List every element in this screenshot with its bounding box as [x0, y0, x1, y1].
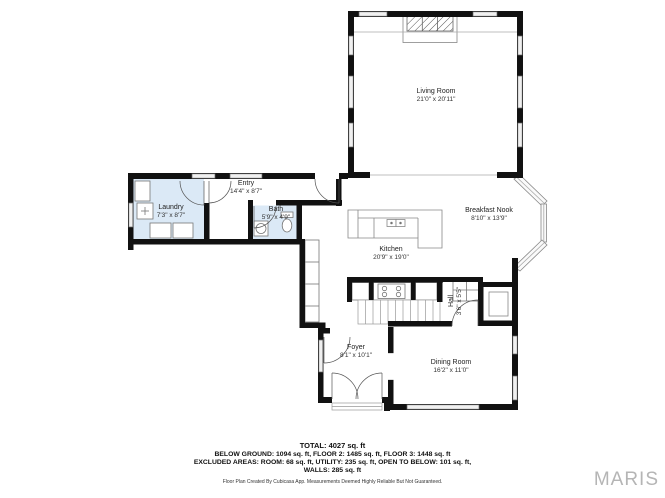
bay-window [514, 175, 547, 271]
room-dims: 21'0" x 20'11" [417, 96, 456, 104]
room-name: Breakfast Nook [465, 207, 513, 215]
summary-total: TOTAL: 4027 sq. ft [0, 441, 665, 450]
bathroom-sink-icon [254, 221, 268, 236]
maris-logo: MARIS [594, 469, 659, 491]
room-dims: 7'3" x 8'7" [157, 212, 185, 220]
area-summary: TOTAL: 4027 sq. ft BELOW GROUND: 1094 sq… [0, 441, 665, 485]
room-dims: 20'9" x 19'0" [373, 254, 409, 262]
room-dims: 8'1" x 10'1" [340, 352, 372, 360]
room-label-dining-room: Dining Room 16'2" x 11'0" [431, 359, 471, 375]
room-name: Living Room [417, 88, 456, 96]
room-label-entry: Entry 14'4" x 8'7" [230, 180, 262, 196]
room-label-kitchen: Kitchen 20'9" x 19'0" [373, 246, 409, 262]
room-dims: 8'10" x 13'9" [465, 215, 513, 223]
room-label-bath: Bath 5'9" x 4'9" [262, 206, 290, 222]
front-door [315, 179, 339, 203]
stoop [332, 403, 382, 410]
kitchen-island [348, 210, 442, 248]
room-label-breakfast-nook: Breakfast Nook 8'10" x 13'9" [465, 207, 513, 223]
island-sink-icon [387, 220, 405, 227]
kitchen-counters [352, 283, 437, 301]
room-name: Hall [448, 287, 456, 315]
closet-shelf [489, 292, 508, 316]
staircase [358, 300, 440, 324]
room-name: Laundry [157, 204, 185, 212]
summary-walls: WALLS: 285 sq. ft [0, 467, 665, 474]
room-label-foyer: Foyer 8'1" x 10'1" [340, 344, 372, 360]
room-label-hall: Hall 3'6" x 5'5" [448, 287, 464, 315]
room-label-living-room: Living Room 21'0" x 20'11" [417, 88, 456, 104]
room-dims: 5'9" x 4'9" [262, 214, 290, 222]
room-dims: 3'6" x 5'5" [456, 287, 464, 315]
room-dims: 16'2" x 11'0" [431, 367, 471, 375]
disclaimer-text: Floor Plan Created By Cubicasa App. Meas… [0, 479, 665, 485]
room-label-laundry: Laundry 7'3" x 8'7" [157, 204, 185, 220]
room-name: Entry [230, 180, 262, 188]
room-name: Dining Room [431, 359, 471, 367]
summary-floors: BELOW GROUND: 1094 sq. ft, FLOOR 2: 1485… [0, 451, 665, 458]
fireplace-icon [403, 14, 457, 43]
room-dims: 14'4" x 8'7" [230, 188, 262, 196]
floor-plan-drawing [0, 0, 665, 498]
room-name: Bath [262, 206, 290, 214]
room-name: Foyer [340, 344, 372, 352]
washer-icon [137, 203, 153, 219]
room-name: Kitchen [373, 246, 409, 254]
entry-closet-door [209, 181, 231, 203]
stove-icon [378, 284, 405, 299]
summary-excluded: EXCLUDED AREAS: ROOM: 68 sq. ft, UTILITY… [0, 459, 665, 466]
pantry-cabinets [305, 240, 319, 322]
floor-plan-page: Living Room 21'0" x 20'11" Entry 14'4" x… [0, 0, 665, 498]
french-doors [332, 373, 382, 399]
